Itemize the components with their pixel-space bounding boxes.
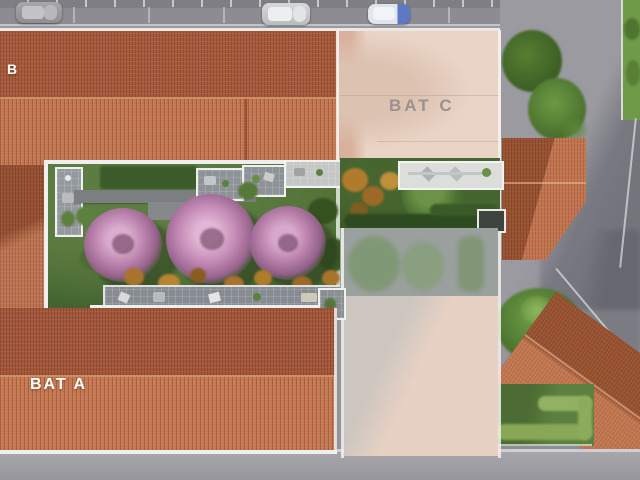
bat-a-roof-upper-slope: [0, 308, 337, 376]
bat-b-roof-lower-slope: [0, 99, 337, 165]
street-tree-small: [562, 118, 588, 140]
label-bat-b: B: [7, 61, 19, 77]
hedge-band: [344, 214, 484, 228]
lawn-curb: [494, 444, 592, 446]
bat-c-ridge: [377, 141, 501, 142]
bat-b-roof-seam: [245, 99, 247, 165]
ghost-right-trim: [498, 30, 501, 458]
verge-bush: [626, 60, 640, 86]
parked-car-grey: [16, 2, 62, 23]
building-bat-c-ghost[interactable]: BAT C: [337, 31, 501, 165]
ghost-lower-roof: [344, 296, 498, 456]
bat-b-left-wing-roof: [0, 165, 46, 312]
orange-shrub: [254, 270, 272, 286]
bat-a-right-trim: [334, 308, 337, 454]
bottom-road: [0, 452, 640, 480]
label-bat-c: BAT C: [389, 96, 455, 116]
car-windshield: [268, 7, 292, 21]
ghost-lower-left-trim: [341, 228, 344, 458]
orange-shrub: [190, 268, 206, 283]
orange-shrub: [124, 268, 144, 286]
ghost-hedge: [458, 236, 484, 292]
ghost-left-trim: [336, 30, 339, 165]
orange-shrub: [322, 270, 340, 286]
label-bat-a: BAT A: [30, 376, 87, 394]
orange-bush-cluster: [362, 186, 384, 206]
terrace-white-strip: [398, 161, 504, 190]
car-windshield: [22, 6, 44, 19]
bat-b-roof-upper-slope: [0, 31, 337, 98]
parked-car-white-blue: [368, 4, 410, 24]
site-plan-render: B BAT C: [0, 0, 640, 480]
pink-tree-core: [200, 228, 224, 250]
verge-bush: [624, 18, 640, 40]
courtyard-top-hedge: [100, 166, 197, 189]
bat-a-bottom-gutter: [0, 450, 337, 454]
orange-bush-cluster: [380, 172, 400, 190]
pink-tree-core: [278, 234, 298, 252]
ghost-tree: [402, 242, 444, 290]
garden-bush: [238, 182, 258, 200]
car-windshield: [373, 7, 395, 20]
building-bat-b[interactable]: [0, 31, 337, 165]
car-roof: [44, 5, 57, 20]
ghost-tree: [348, 236, 400, 292]
ghost-courtyard: [340, 228, 498, 296]
hedge-row: [578, 396, 592, 440]
car-roof: [293, 6, 306, 22]
terrace-top-3: [284, 160, 342, 188]
building-bat-a[interactable]: BAT A: [0, 308, 337, 454]
parked-car-silver: [262, 3, 310, 25]
pink-tree-core: [112, 234, 134, 254]
courtyard-left-trim: [44, 160, 48, 312]
